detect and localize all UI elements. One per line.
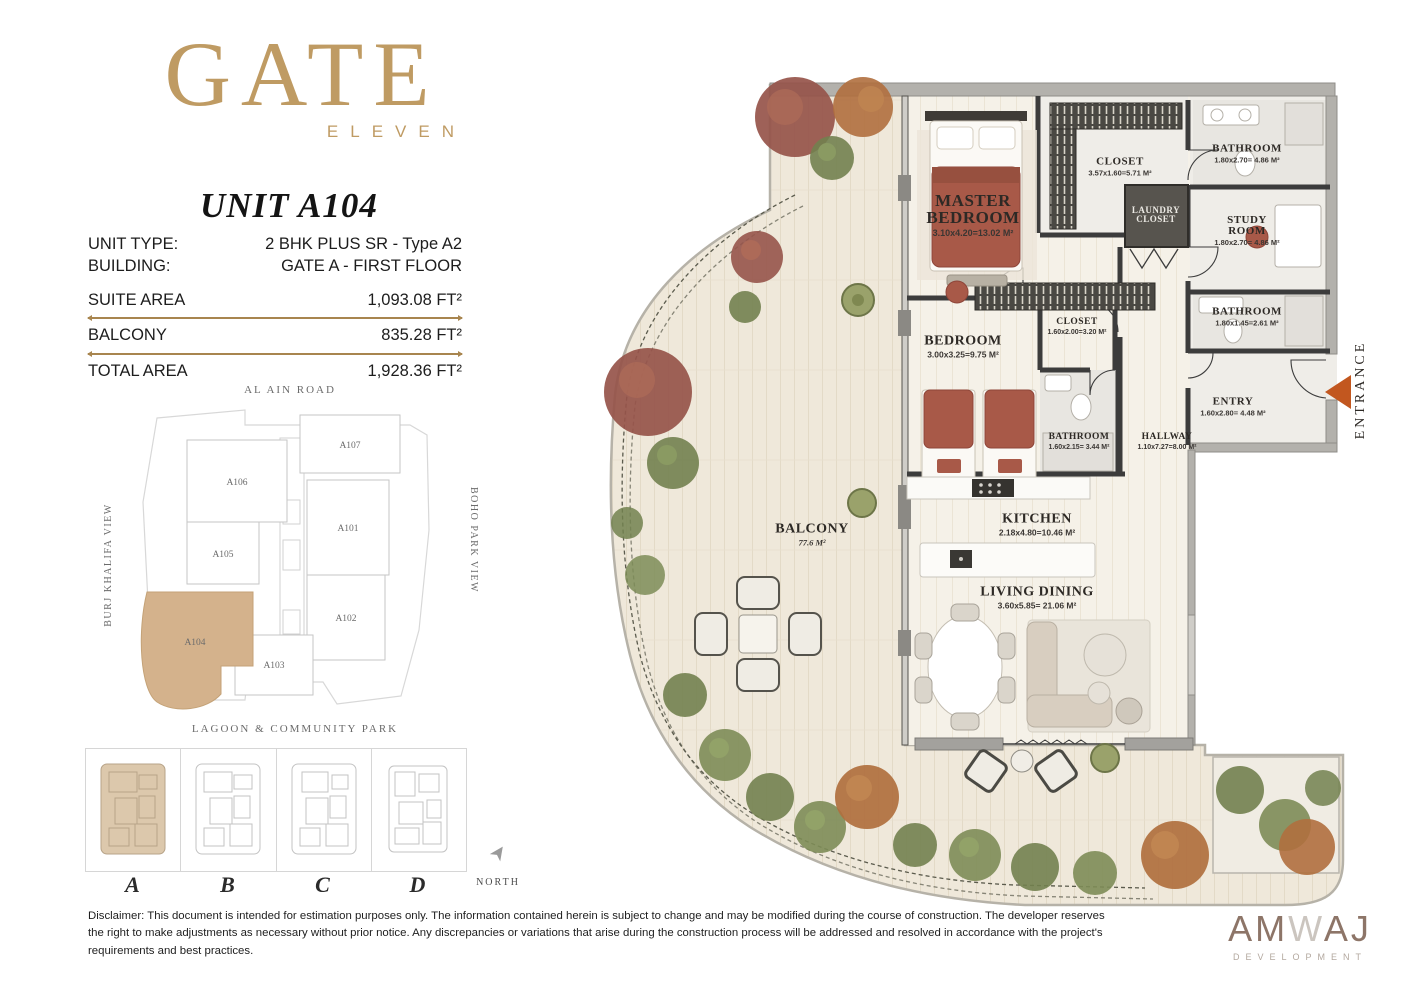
- unit-A105-label: A105: [212, 550, 233, 560]
- logo-gate-text: GATE: [132, 28, 472, 120]
- unit-type-label: UNIT TYPE:: [88, 234, 178, 256]
- balcony-area-label: BALCONY: [88, 325, 167, 347]
- closet-label: CLOSET 3.57x1.60=5.71 M²: [1088, 156, 1151, 177]
- building-row: BUILDING: GATE A - FIRST FLOOR: [88, 256, 462, 278]
- suite-area-row: SUITE AREA 1,093.08 FT²: [88, 290, 462, 312]
- unit-A107-label: A107: [339, 441, 360, 451]
- al-ain-road-label: AL AIN ROAD: [244, 384, 336, 396]
- laundry-closet-label: LAUNDRY CLOSET: [1127, 206, 1185, 224]
- unit-type-value: 2 BHK PLUS SR - Type A2: [265, 234, 462, 256]
- site-plan: A107 A106 A105 A101 A102 A103 A104 AL AI…: [95, 380, 485, 740]
- closet2-label: CLOSET 1.60x2.00=3.20 M²: [1048, 318, 1107, 336]
- building-key-C: [277, 749, 372, 871]
- building-key-letters: A B C D: [85, 872, 465, 898]
- lagoon-community-park-label: LAGOON & COMMUNITY PARK: [192, 723, 398, 735]
- building-letter-C: C: [275, 872, 370, 898]
- master-bedroom-label: MASTER BEDROOM 3.10x4.20=13.02 M²: [908, 192, 1038, 238]
- project-logo: GATE ELEVEN: [132, 28, 472, 142]
- kitchen-island: [920, 543, 1095, 577]
- disclaimer-text: Disclaimer: This document is intended fo…: [88, 908, 1118, 960]
- entry-label: ENTRY 1.60x2.80= 4.48 M²: [1200, 396, 1265, 417]
- logo-eleven-text: ELEVEN: [132, 122, 472, 142]
- gold-divider: [88, 317, 462, 319]
- building-key: [85, 748, 467, 872]
- bedroom-label: BEDROOM 3.00x3.25=9.75 M²: [924, 334, 1001, 359]
- building-letter-D: D: [370, 872, 465, 898]
- building-D-minimap: [383, 760, 455, 860]
- unit-A101-label: A101: [337, 524, 358, 534]
- burj-khalifa-view-label: BURJ KHALIFA VIEW: [103, 503, 114, 626]
- building-key-D: [372, 749, 466, 871]
- floor-plan: MASTER BEDROOM 3.10x4.20=13.02 M² CLOSET…: [585, 55, 1385, 915]
- balcony-area-value: 835.28 FT²: [381, 325, 462, 347]
- unit-info-table: UNIT TYPE: 2 BHK PLUS SR - Type A2 BUILD…: [88, 234, 462, 383]
- unit-A103-label: A103: [263, 661, 284, 671]
- north-arrow-icon: ➤: [483, 838, 513, 866]
- armchair: [1116, 698, 1142, 724]
- north-indicator: ➤ NORTH: [468, 840, 528, 888]
- floor-plan-drawing: [585, 55, 1385, 915]
- gold-divider: [88, 353, 462, 355]
- bathroom1-label: BATHROOM 1.80x2.70= 4.86 M²: [1212, 143, 1282, 164]
- unit-title: UNIT A104: [200, 186, 378, 226]
- unit-A106-label: A106: [226, 478, 247, 488]
- study-room-label: STUDY ROOM 1.80x2.70= 4.86 M²: [1212, 215, 1282, 247]
- suite-area-label: SUITE AREA: [88, 290, 185, 312]
- balcony-label: BALCONY 77.6 M²: [775, 522, 849, 547]
- balcony-area-row: BALCONY 835.28 FT²: [88, 325, 462, 347]
- building-key-A: [86, 749, 181, 871]
- dining-table: [928, 616, 1002, 718]
- hallway-label: HALLWAY 1.10x7.27=8.00 M²: [1132, 433, 1202, 451]
- bathroom3-label: BATHROOM 1.60x2.15= 3.44 M²: [1049, 433, 1110, 451]
- unit-A102-label: A102: [335, 614, 356, 624]
- developer-logo: AMWAJ DEVELOPMENT: [1215, 908, 1385, 962]
- kitchen-label: KITCHEN 2.18x4.80=10.46 M²: [999, 512, 1075, 537]
- living-dining-label: LIVING DINING 3.60x5.85= 21.06 M²: [980, 585, 1093, 610]
- building-B-minimap: [192, 760, 264, 860]
- north-label: NORTH: [468, 877, 528, 888]
- unit-type-row: UNIT TYPE: 2 BHK PLUS SR - Type A2: [88, 234, 462, 256]
- building-letter-B: B: [180, 872, 275, 898]
- hedge-box-icon: [1213, 757, 1341, 875]
- unit-A104-label: A104: [184, 638, 205, 648]
- boho-park-view-label: BOHO PARK VIEW: [468, 487, 479, 593]
- bathroom2-label: BATHROOM 1.80x1.45=2.61 M²: [1212, 306, 1282, 327]
- building-value: GATE A - FIRST FLOOR: [281, 256, 462, 278]
- building-label: BUILDING:: [88, 256, 171, 278]
- master-armchair: [946, 281, 968, 303]
- amwaj-subtitle: DEVELOPMENT: [1215, 952, 1385, 962]
- building-letter-A: A: [85, 872, 180, 898]
- building-A-minimap: [97, 760, 169, 860]
- building-C-minimap: [288, 760, 360, 860]
- building-key-B: [181, 749, 276, 871]
- floorplan-brochure-page: GATE ELEVEN UNIT A104 UNIT TYPE: 2 BHK P…: [0, 0, 1414, 1000]
- suite-area-value: 1,093.08 FT²: [368, 290, 462, 312]
- entrance-label: ENTRANCE: [1353, 341, 1369, 440]
